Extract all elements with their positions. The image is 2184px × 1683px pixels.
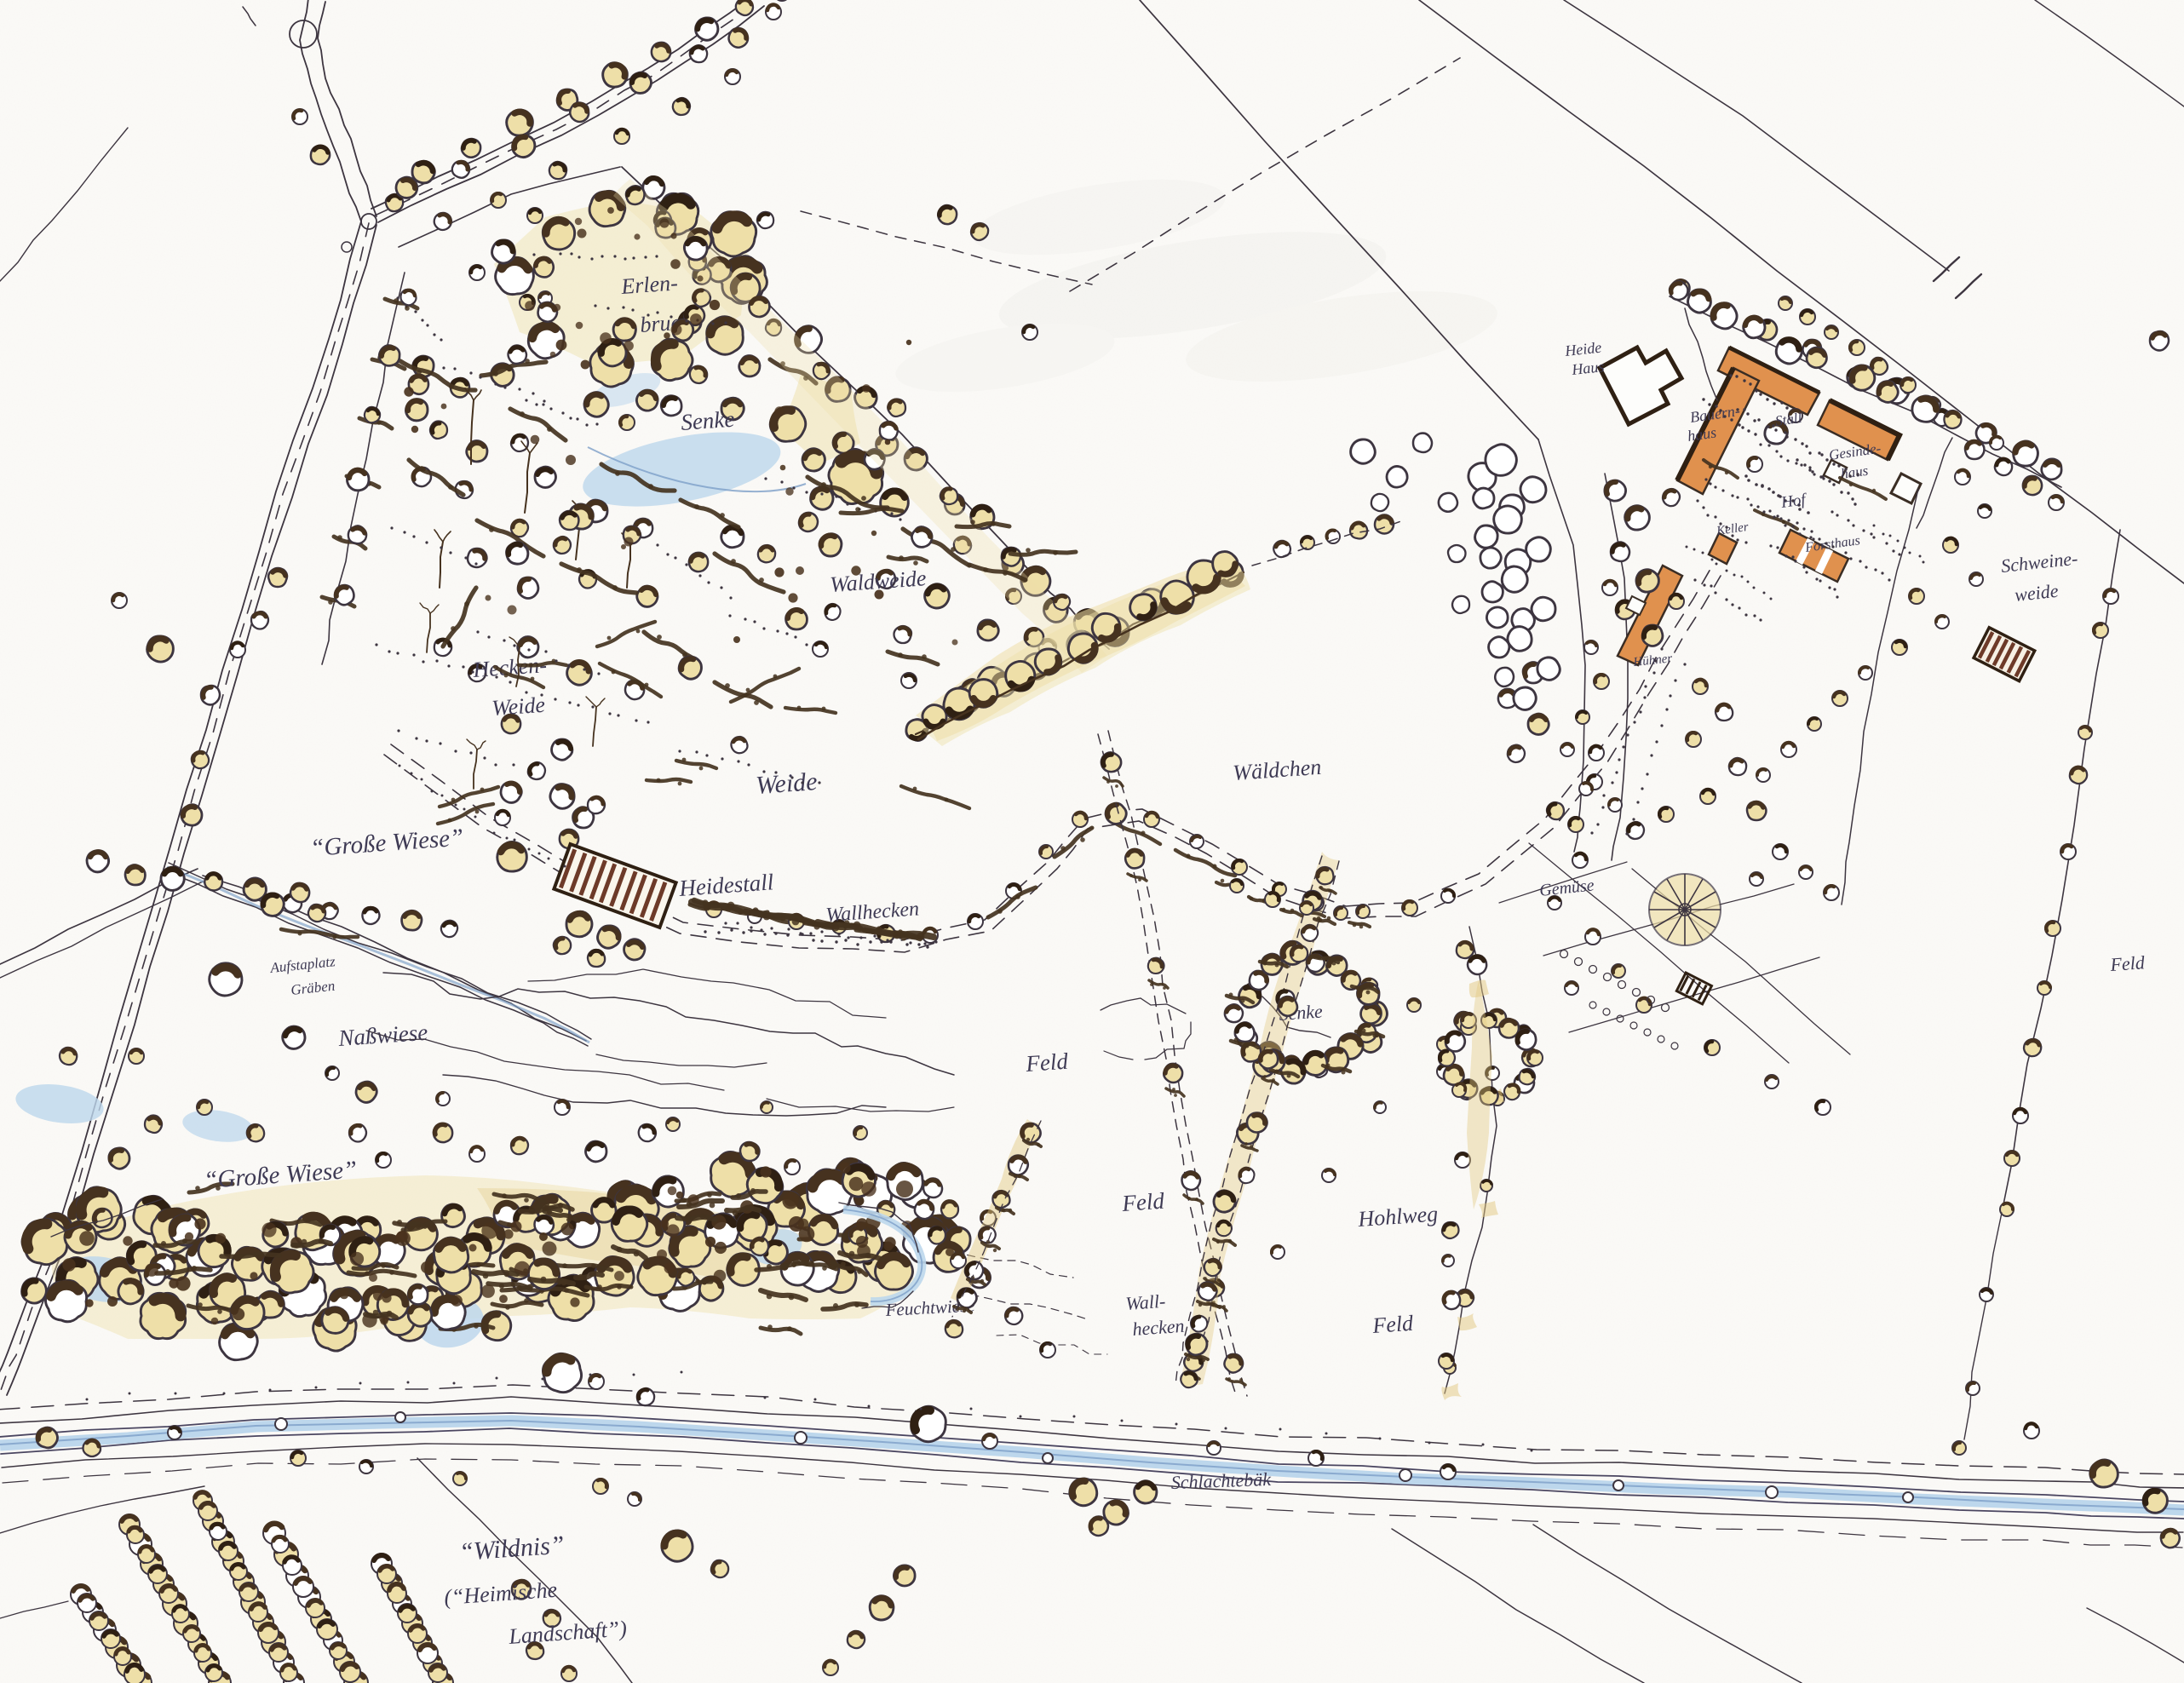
svg-text:hecken: hecken	[1132, 1315, 1186, 1340]
svg-text:Erlen-: Erlen-	[619, 270, 678, 299]
svg-text:Wall-: Wall-	[1125, 1290, 1166, 1314]
svg-text:Hof: Hof	[1779, 491, 1809, 512]
svg-text:Feld: Feld	[1024, 1048, 1069, 1077]
svg-text:Senke: Senke	[680, 406, 735, 435]
svg-text:Schlachtebäk: Schlachtebäk	[1170, 1468, 1272, 1493]
svg-text:Weide: Weide	[491, 692, 545, 721]
svg-text:Feld: Feld	[1371, 1311, 1415, 1338]
svg-text:Haus: Haus	[1570, 358, 1605, 378]
svg-text:Hecken-: Hecken-	[471, 652, 547, 682]
svg-text:Feld: Feld	[2109, 951, 2147, 975]
svg-text:Feld: Feld	[1120, 1188, 1165, 1216]
